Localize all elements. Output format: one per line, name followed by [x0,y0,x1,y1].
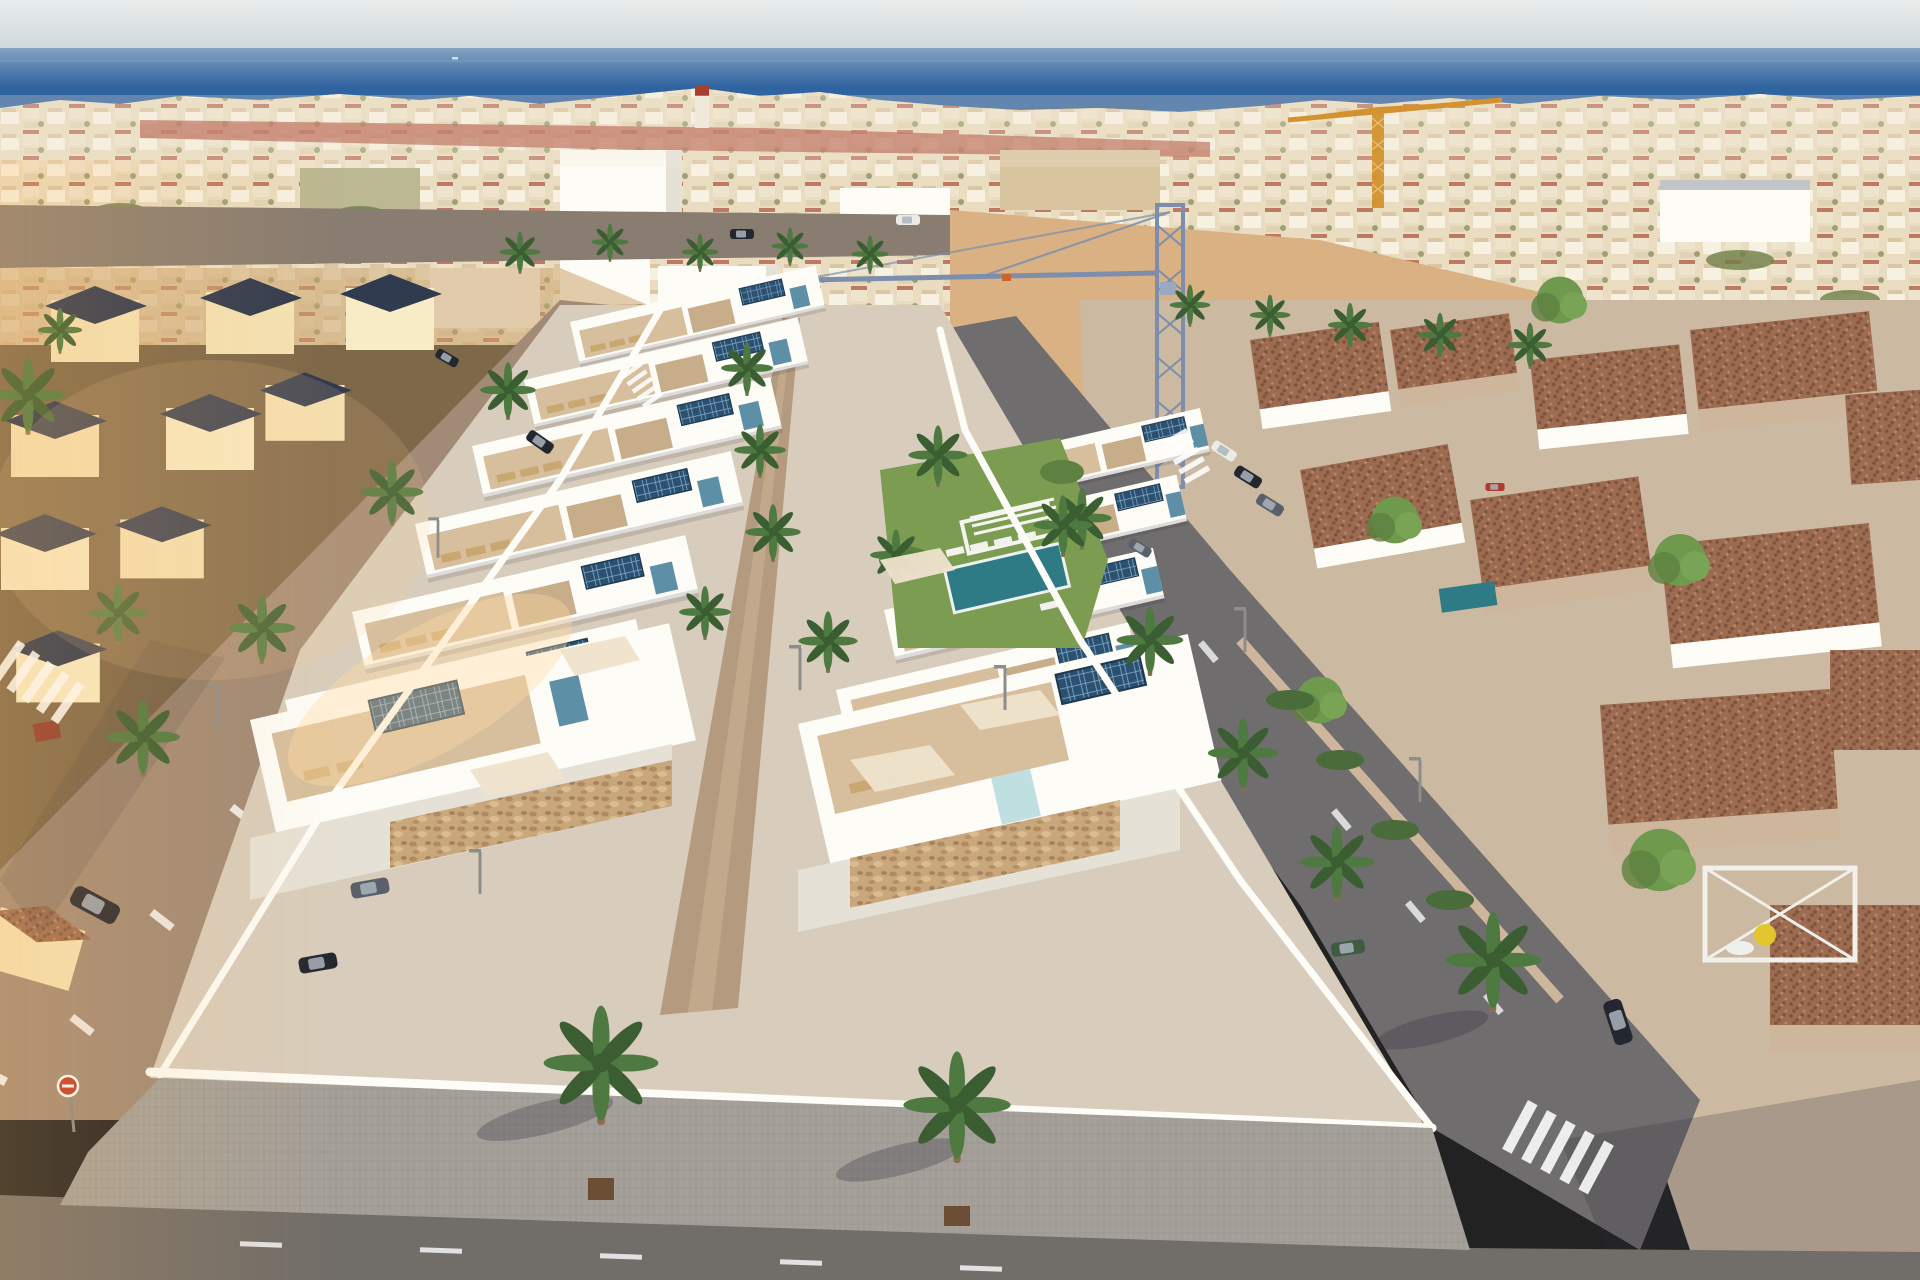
aerial-photo [0,0,1920,1280]
boat [452,57,458,60]
sky [0,0,1920,55]
parked-car [1485,483,1504,491]
scene-canvas [0,0,1920,1280]
lighting [0,160,760,1280]
crane-cab [1160,282,1176,295]
palm-planter [944,1206,970,1226]
yellow-umbrella [1754,924,1776,946]
crane-trolley [1002,274,1011,281]
parked-car [896,215,920,225]
haze [0,95,1920,167]
